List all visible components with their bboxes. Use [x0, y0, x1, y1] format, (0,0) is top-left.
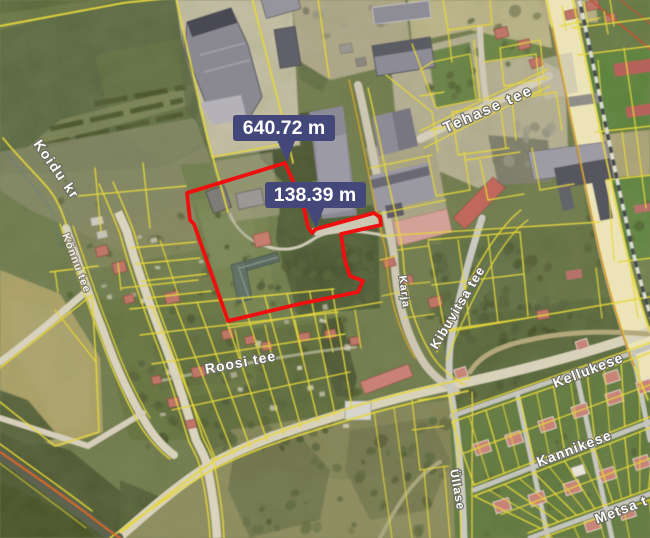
- svg-text:640.72 m: 640.72 m: [243, 117, 325, 139]
- svg-text:138.39 m: 138.39 m: [274, 184, 356, 206]
